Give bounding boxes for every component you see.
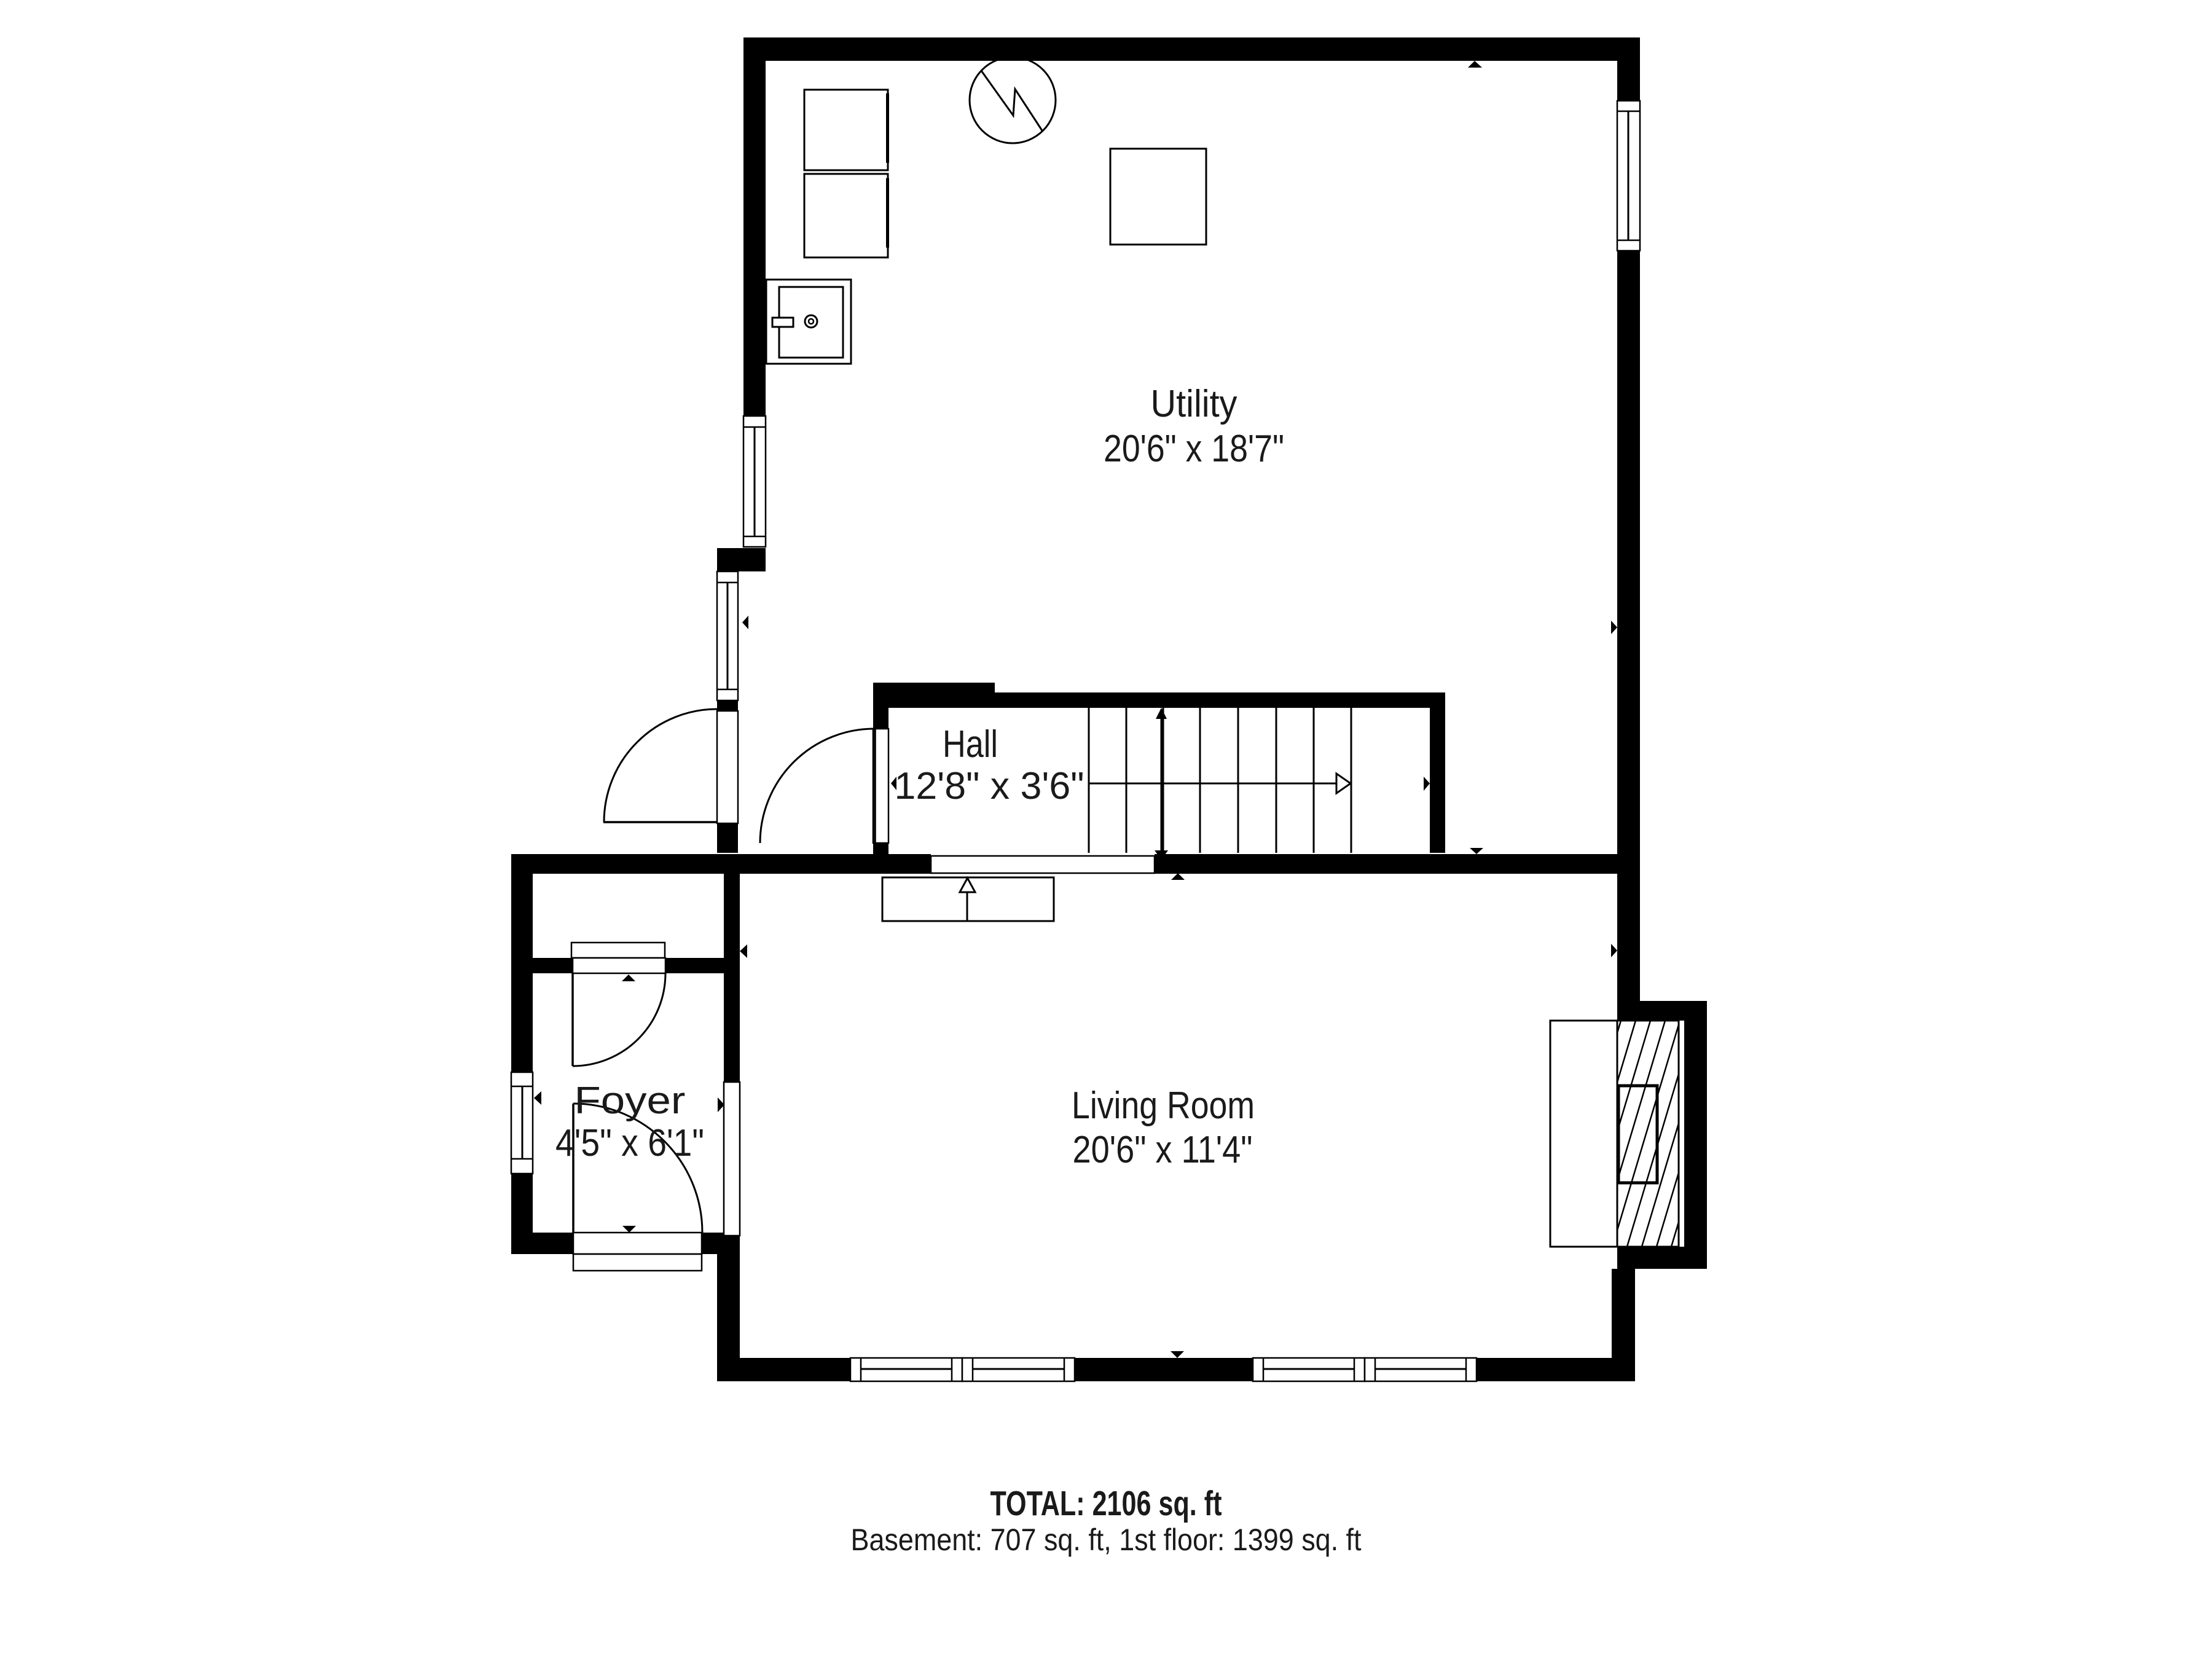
svg-text:20'6" x 18'7": 20'6" x 18'7" [1104, 428, 1284, 470]
svg-text:TOTAL: 2106 sq. ft: TOTAL: 2106 sq. ft [990, 1484, 1222, 1523]
svg-text:20'6" x 11'4": 20'6" x 11'4" [1073, 1129, 1253, 1171]
svg-text:Utility: Utility [1151, 383, 1237, 425]
svg-text:4'5" x 6'1": 4'5" x 6'1" [555, 1122, 704, 1164]
svg-text:12'8" x 3'6": 12'8" x 3'6" [895, 765, 1084, 807]
svg-text:Basement: 707 sq. ft, 1st floo: Basement: 707 sq. ft, 1st floor: 1399 sq… [851, 1523, 1362, 1557]
svg-text:Hall: Hall [943, 723, 998, 766]
svg-text:Foyer: Foyer [575, 1080, 686, 1122]
svg-text:Living Room: Living Room [1072, 1084, 1255, 1127]
